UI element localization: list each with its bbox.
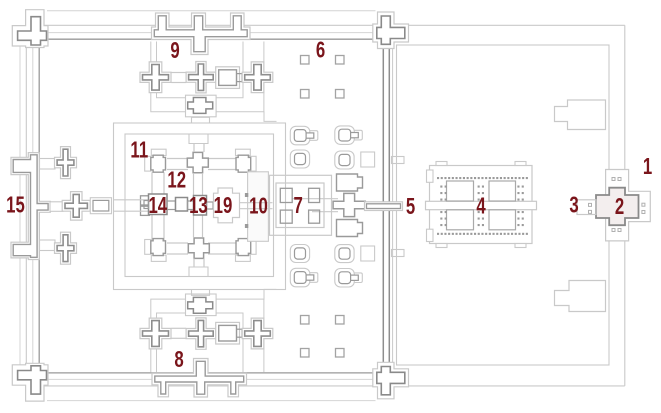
svg-text:2: 2 [615,194,624,219]
svg-text:11: 11 [130,138,148,163]
svg-text:4: 4 [476,194,486,219]
svg-text:6: 6 [316,38,325,63]
svg-text:7: 7 [294,194,303,219]
svg-text:9: 9 [170,39,179,64]
svg-text:15: 15 [6,193,25,218]
svg-text:1: 1 [643,154,652,179]
svg-text:5: 5 [406,195,415,220]
svg-text:19: 19 [214,194,233,219]
svg-text:10: 10 [249,194,268,219]
svg-text:8: 8 [174,348,183,373]
svg-text:12: 12 [167,168,186,193]
svg-text:3: 3 [569,193,578,218]
svg-text:14: 14 [148,194,167,219]
svg-text:13: 13 [189,194,208,219]
